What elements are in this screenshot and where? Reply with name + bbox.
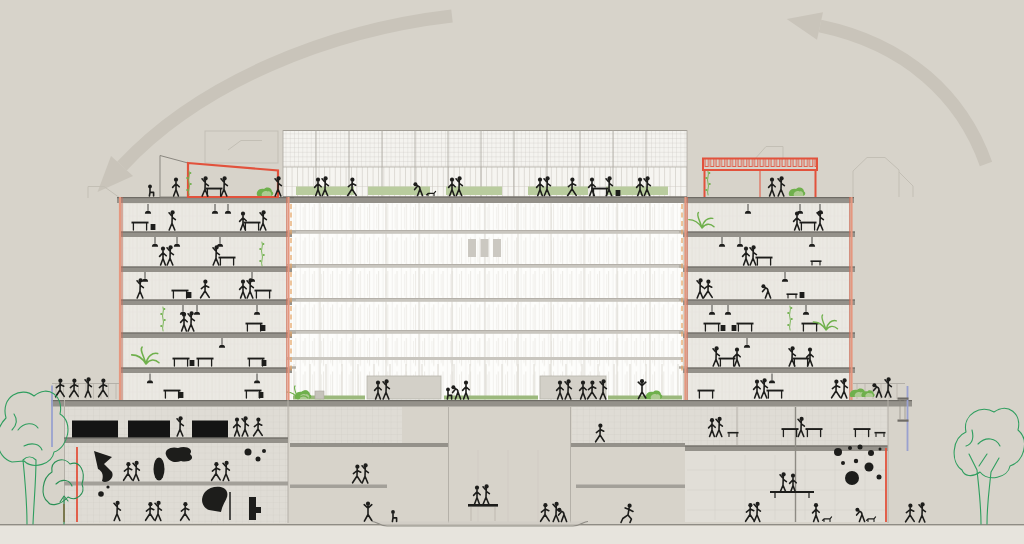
mezzanine-slab bbox=[290, 443, 448, 447]
terrace-cube bbox=[315, 391, 324, 399]
podium-slab-edge bbox=[51, 400, 912, 401]
mezzanine-wall bbox=[572, 407, 685, 443]
bin-icon bbox=[732, 325, 737, 331]
basement-slab-edge bbox=[64, 438, 288, 439]
architectural-section-canvas bbox=[0, 0, 1024, 544]
mezzanine-slab bbox=[570, 443, 685, 447]
exhibit-screens bbox=[72, 421, 228, 438]
basement-right-upper bbox=[685, 407, 888, 446]
abstract-sculpture bbox=[256, 507, 261, 513]
central-block bbox=[283, 130, 687, 400]
basement-slab bbox=[64, 482, 288, 486]
roof-slab-edge bbox=[283, 197, 687, 198]
mezzanine-slab bbox=[290, 485, 387, 489]
abstract-sculpture bbox=[166, 447, 192, 462]
bin-icon bbox=[721, 325, 726, 331]
dot-artwork bbox=[98, 491, 104, 497]
bin-icon bbox=[259, 392, 264, 398]
bin-icon bbox=[190, 360, 195, 366]
bin-icon bbox=[187, 292, 192, 298]
bin-icon bbox=[800, 292, 805, 298]
section-drawing bbox=[0, 0, 1024, 544]
bin-icon bbox=[179, 392, 184, 398]
bin-icon bbox=[151, 224, 156, 230]
abstract-sculpture bbox=[154, 458, 165, 481]
bin-icon bbox=[262, 360, 267, 366]
abstract-sculpture bbox=[249, 497, 256, 520]
mezzanine-slab bbox=[576, 485, 685, 489]
bin-icon bbox=[261, 325, 266, 331]
recessed-pool bbox=[372, 522, 588, 527]
dot-artwork bbox=[245, 449, 252, 456]
dot-artwork bbox=[106, 485, 109, 488]
basement-right bbox=[685, 400, 888, 523]
dot-artwork bbox=[256, 457, 261, 462]
dot-artwork bbox=[262, 449, 266, 453]
bin-icon bbox=[616, 190, 621, 196]
scaffold-shelf bbox=[898, 398, 909, 400]
basement-left bbox=[64, 400, 288, 523]
facade-louvre-detail bbox=[468, 239, 501, 257]
basement-slab-edge bbox=[685, 446, 888, 447]
scaffold-shelf bbox=[898, 420, 909, 422]
ground-strip bbox=[0, 526, 1024, 544]
mezzanine-wall bbox=[290, 407, 402, 443]
grass-strip bbox=[444, 396, 538, 400]
